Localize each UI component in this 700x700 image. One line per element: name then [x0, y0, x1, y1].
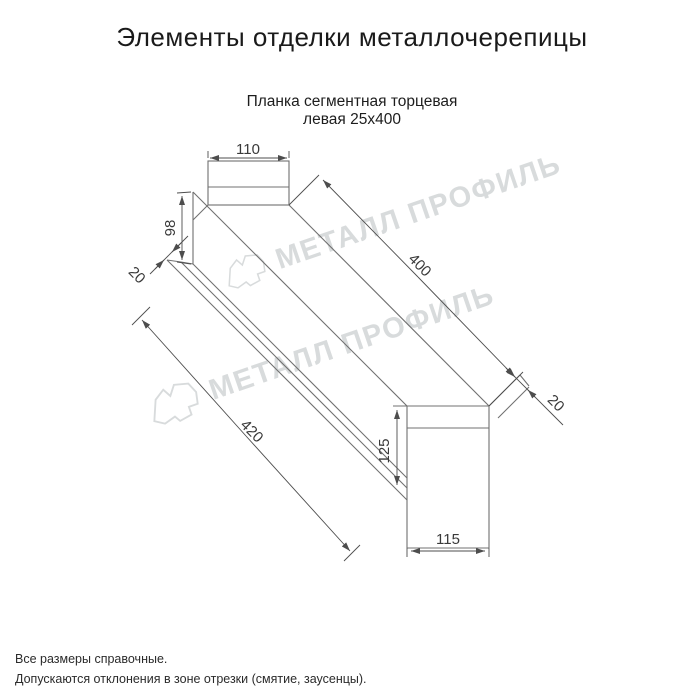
dim-label-left-hem: 20: [125, 263, 149, 287]
footer-notes: Все размеры справочные. Допускаются откл…: [15, 649, 367, 689]
dim-label-left-end-height: 98: [162, 220, 179, 237]
dim-label-bottom-length: 420: [237, 416, 267, 446]
technical-drawing: 110 98 20 400 420 20 125 115: [0, 0, 700, 700]
left-end-face: [208, 161, 289, 205]
dim-label-top-length: 400: [405, 250, 435, 280]
dimension-lines: [132, 151, 563, 561]
footer-note-1: Все размеры справочные.: [15, 649, 367, 669]
dim-label-right-end-height: 125: [376, 438, 393, 463]
dim-label-bottom-flange-width: 115: [436, 531, 460, 548]
dim-label-top-flange-width: 110: [236, 141, 260, 158]
profile-outline: [167, 161, 529, 548]
footer-note-2: Допускаются отклонения в зоне отрезки (с…: [15, 669, 367, 689]
dim-label-right-hem: 20: [544, 391, 568, 415]
